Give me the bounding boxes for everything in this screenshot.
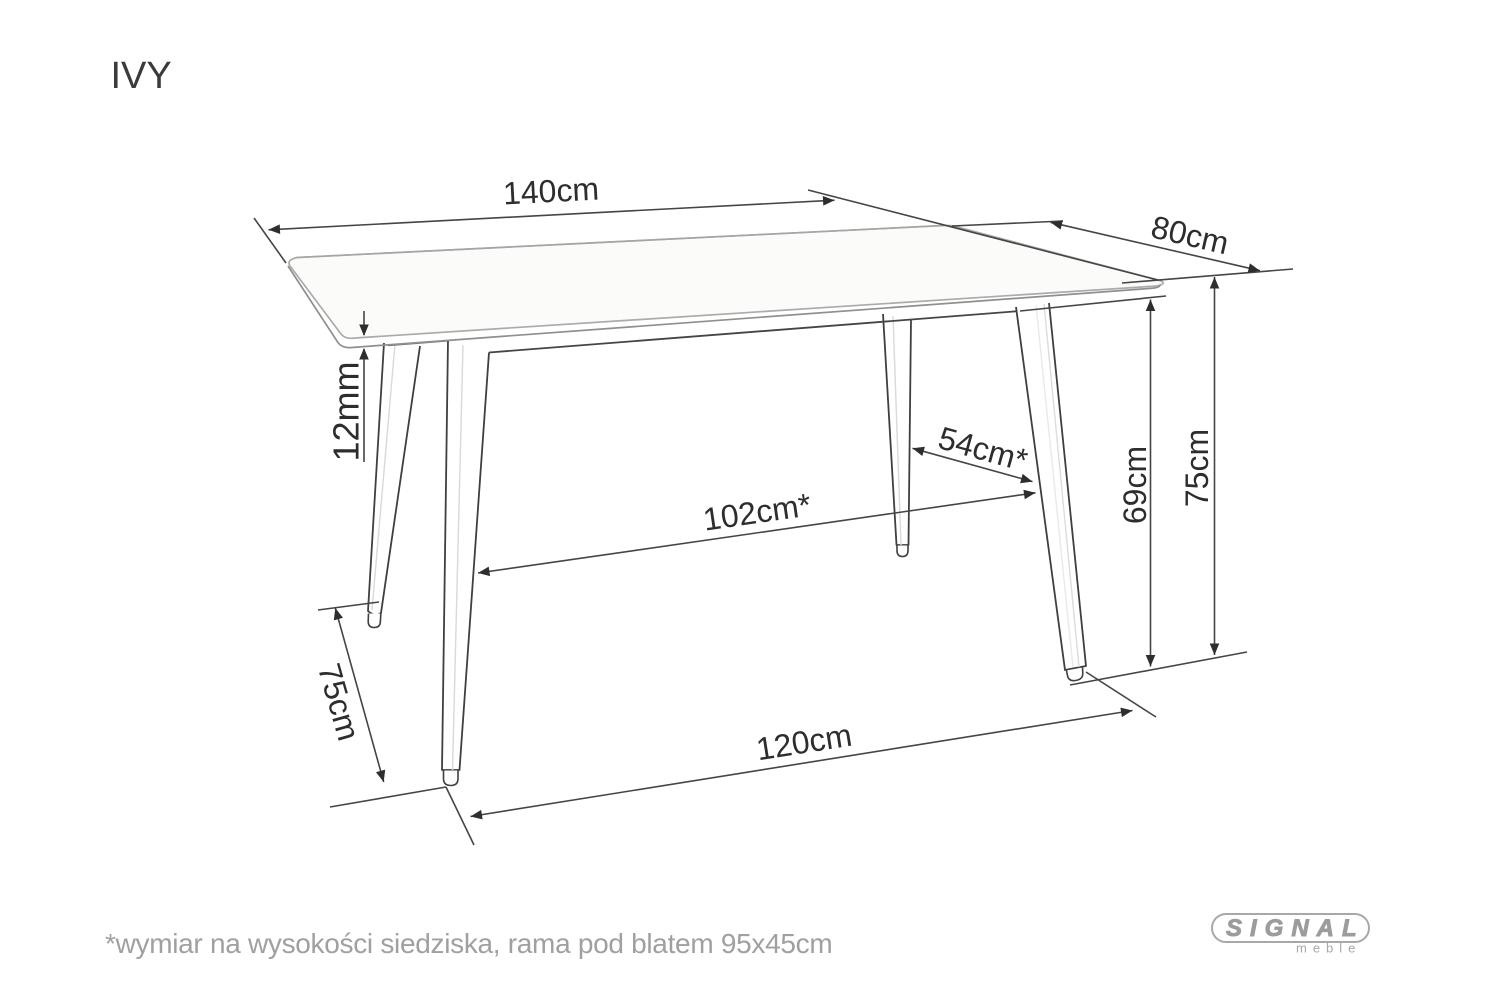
svg-text:12mm: 12mm <box>326 361 367 461</box>
svg-text:102cm*: 102cm* <box>701 486 814 537</box>
svg-text:meble: meble <box>1296 941 1361 956</box>
svg-text:120cm: 120cm <box>754 717 854 768</box>
svg-text:69cm: 69cm <box>1117 446 1153 524</box>
svg-text:75cm: 75cm <box>1179 429 1215 507</box>
svg-text:80cm: 80cm <box>1148 209 1232 262</box>
svg-text:140cm: 140cm <box>502 171 600 212</box>
svg-text:54cm*: 54cm* <box>934 420 1031 479</box>
svg-text:75cm: 75cm <box>311 659 367 744</box>
svg-text:SIGNAL: SIGNAL <box>1226 915 1365 942</box>
svg-text:IVY: IVY <box>111 55 172 97</box>
svg-text:*wymiar na wysokości siedziska: *wymiar na wysokości siedziska, rama pod… <box>105 928 832 959</box>
